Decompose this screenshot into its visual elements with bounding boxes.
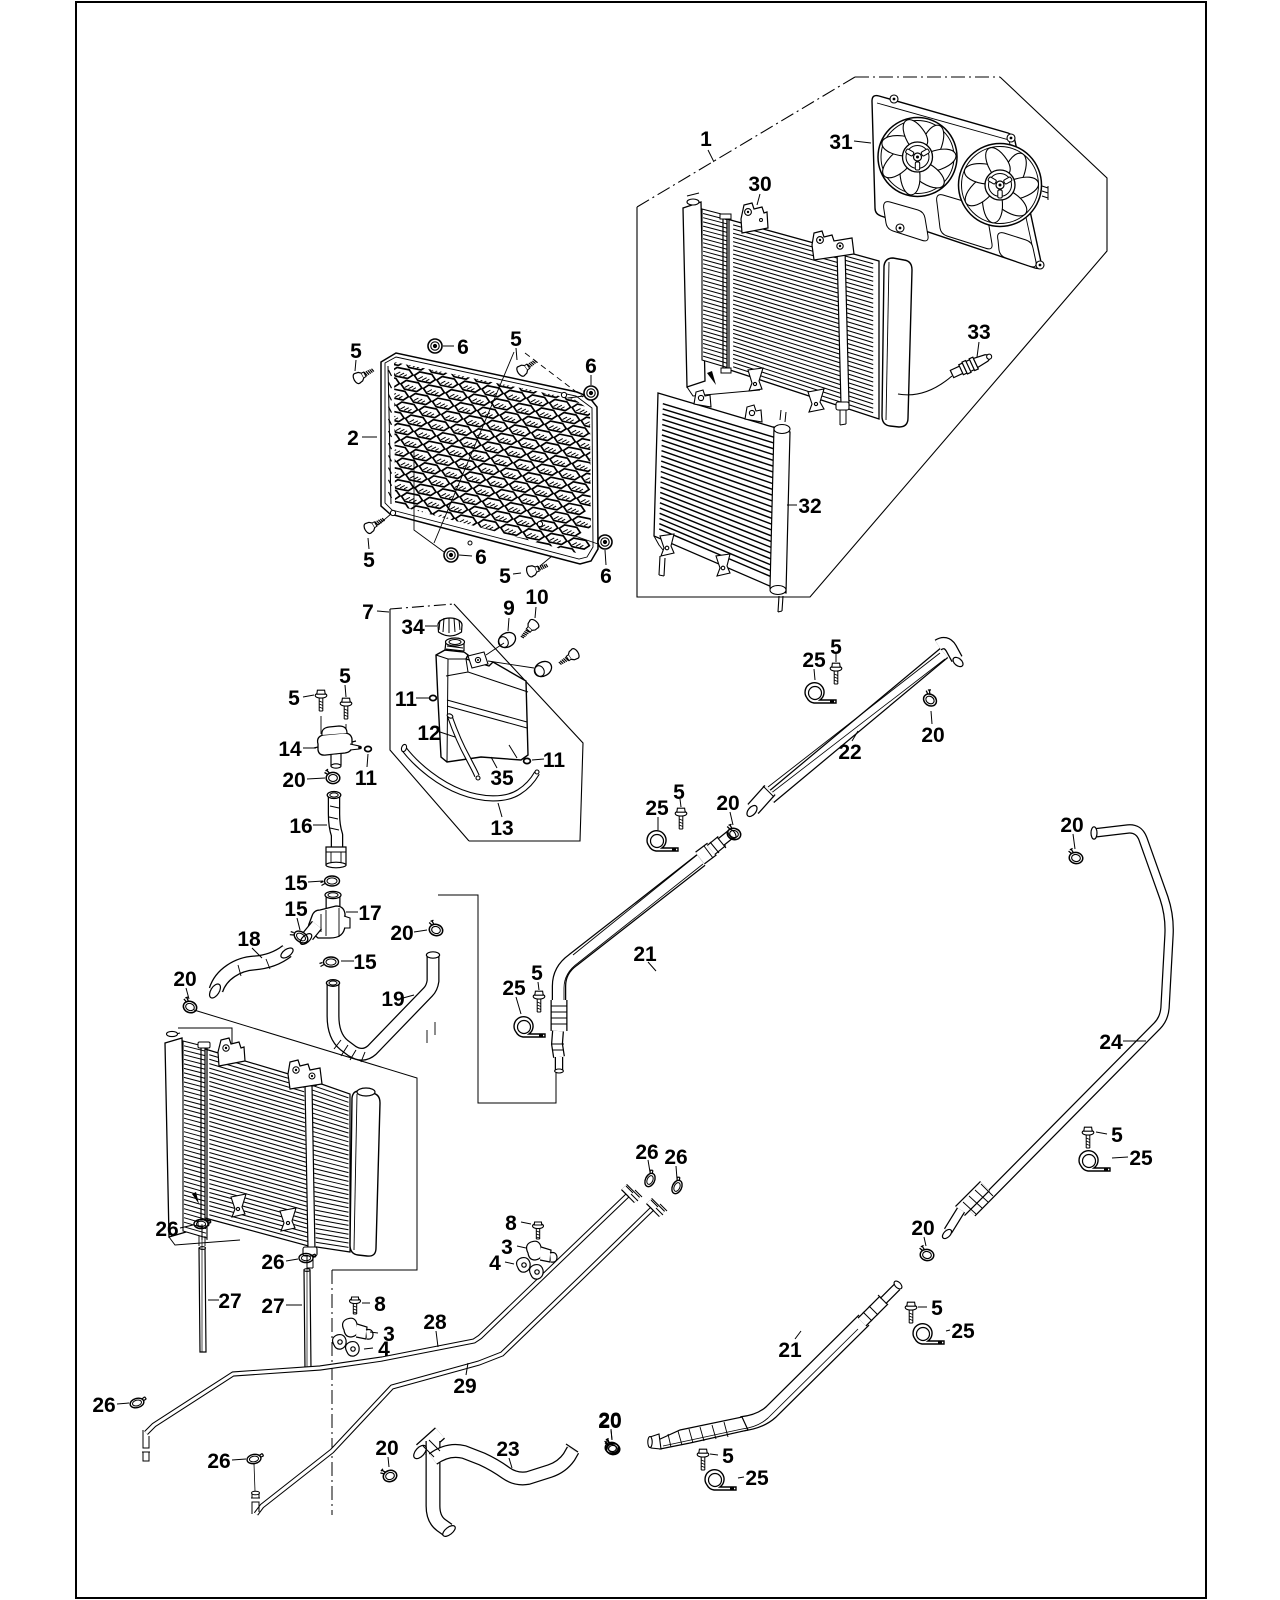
svg-text:27: 27 — [218, 1290, 241, 1313]
svg-text:20: 20 — [282, 769, 305, 792]
svg-text:19: 19 — [381, 988, 404, 1011]
svg-text:23: 23 — [496, 1438, 519, 1461]
svg-text:33: 33 — [967, 321, 990, 344]
svg-text:31: 31 — [829, 131, 853, 154]
svg-text:11: 11 — [355, 767, 378, 790]
svg-text:26: 26 — [261, 1251, 284, 1274]
svg-text:21: 21 — [778, 1339, 802, 1362]
svg-text:24: 24 — [1099, 1031, 1123, 1054]
svg-text:35: 35 — [490, 767, 514, 790]
svg-text:22: 22 — [838, 741, 861, 764]
svg-text:20: 20 — [173, 968, 196, 991]
svg-text:4: 4 — [378, 1338, 390, 1361]
svg-text:5: 5 — [288, 687, 300, 710]
svg-text:25: 25 — [951, 1320, 975, 1343]
svg-text:21: 21 — [633, 943, 657, 966]
svg-text:27: 27 — [261, 1295, 284, 1318]
svg-text:20: 20 — [1060, 814, 1083, 837]
svg-text:25: 25 — [1129, 1147, 1153, 1170]
svg-text:20: 20 — [375, 1437, 398, 1460]
svg-text:8: 8 — [505, 1212, 517, 1235]
svg-text:26: 26 — [664, 1146, 687, 1169]
svg-text:9: 9 — [503, 597, 515, 620]
svg-text:5: 5 — [673, 781, 685, 804]
svg-text:30: 30 — [748, 173, 771, 196]
svg-text:28: 28 — [423, 1311, 447, 1334]
svg-text:5: 5 — [1111, 1124, 1123, 1147]
svg-text:15: 15 — [284, 898, 308, 921]
svg-text:16: 16 — [289, 815, 312, 838]
svg-text:5: 5 — [931, 1297, 943, 1320]
svg-text:26: 26 — [155, 1218, 178, 1241]
svg-text:25: 25 — [802, 649, 826, 672]
svg-text:32: 32 — [798, 495, 821, 518]
svg-text:5: 5 — [531, 962, 543, 985]
svg-text:5: 5 — [510, 328, 522, 351]
svg-text:26: 26 — [207, 1450, 230, 1473]
svg-text:15: 15 — [284, 872, 308, 895]
svg-text:5: 5 — [350, 340, 362, 363]
svg-text:29: 29 — [453, 1375, 476, 1398]
svg-text:11: 11 — [543, 749, 566, 772]
svg-text:34: 34 — [401, 616, 425, 639]
svg-text:3: 3 — [501, 1236, 513, 1259]
svg-text:4: 4 — [489, 1252, 501, 1275]
svg-text:10: 10 — [525, 586, 548, 609]
svg-text:7: 7 — [362, 601, 374, 624]
svg-text:6: 6 — [457, 336, 469, 359]
svg-text:5: 5 — [722, 1445, 734, 1468]
svg-text:26: 26 — [92, 1394, 115, 1417]
svg-text:25: 25 — [502, 977, 526, 1000]
svg-text:5: 5 — [339, 665, 351, 688]
svg-text:6: 6 — [585, 355, 597, 378]
svg-text:18: 18 — [237, 928, 261, 951]
svg-text:13: 13 — [490, 817, 513, 840]
svg-text:26: 26 — [635, 1141, 658, 1164]
svg-text:12: 12 — [417, 722, 440, 745]
svg-text:25: 25 — [645, 797, 669, 820]
svg-text:2: 2 — [347, 427, 359, 450]
svg-text:20: 20 — [921, 724, 944, 747]
svg-text:11: 11 — [395, 688, 418, 711]
svg-text:25: 25 — [745, 1467, 769, 1490]
svg-text:8: 8 — [374, 1293, 386, 1316]
svg-text:20: 20 — [598, 1410, 621, 1433]
svg-text:20: 20 — [390, 922, 413, 945]
svg-text:15: 15 — [353, 951, 377, 974]
svg-text:20: 20 — [716, 792, 739, 815]
svg-text:6: 6 — [600, 565, 612, 588]
svg-text:5: 5 — [363, 549, 375, 572]
svg-text:6: 6 — [475, 546, 487, 569]
svg-text:17: 17 — [358, 902, 381, 925]
svg-text:14: 14 — [278, 738, 302, 761]
svg-text:5: 5 — [499, 565, 511, 588]
svg-text:1: 1 — [700, 128, 712, 151]
svg-text:20: 20 — [911, 1217, 934, 1240]
